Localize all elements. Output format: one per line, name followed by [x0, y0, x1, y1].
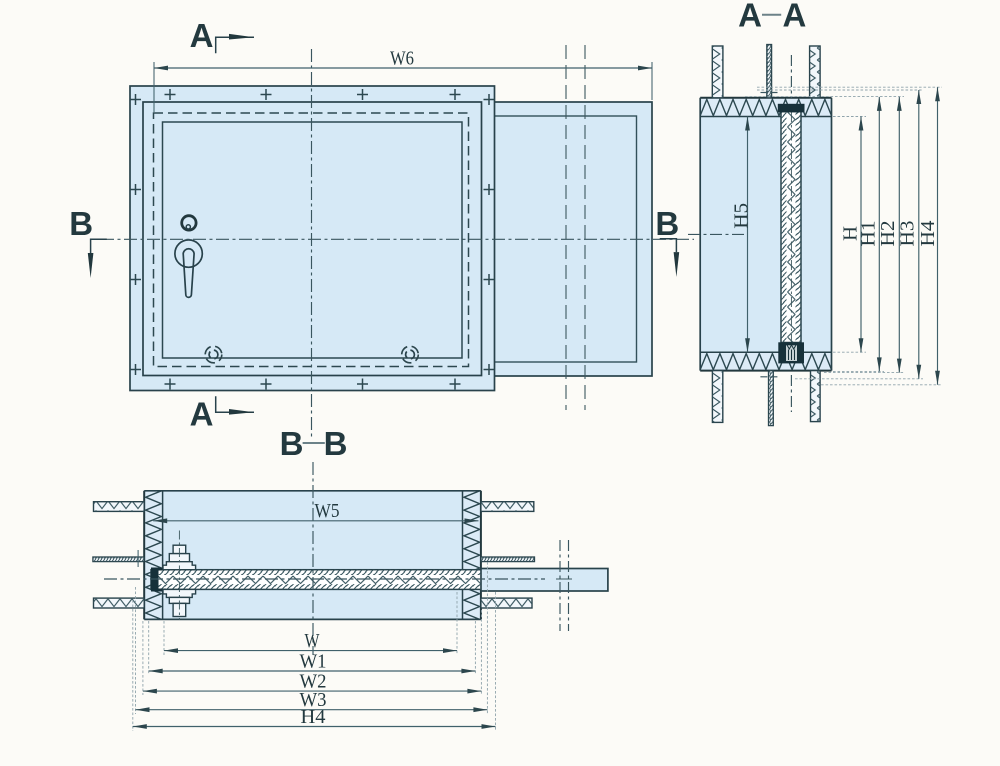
svg-text:H4: H4: [301, 706, 326, 728]
svg-text:H5: H5: [731, 203, 753, 229]
svg-text:B: B: [655, 205, 679, 242]
svg-text:A: A: [190, 396, 214, 433]
svg-text:W5: W5: [315, 500, 340, 522]
svg-text:H4: H4: [917, 221, 939, 247]
svg-text:W: W: [305, 630, 320, 652]
svg-text:A: A: [782, 0, 806, 33]
svg-text:A: A: [738, 0, 762, 33]
svg-text:W6: W6: [390, 48, 414, 70]
svg-text:A: A: [190, 17, 214, 54]
svg-text:B: B: [280, 425, 304, 462]
svg-text:W1: W1: [300, 650, 327, 672]
svg-text:H3: H3: [897, 221, 919, 247]
svg-text:B: B: [324, 425, 348, 462]
svg-text:B: B: [69, 205, 93, 242]
